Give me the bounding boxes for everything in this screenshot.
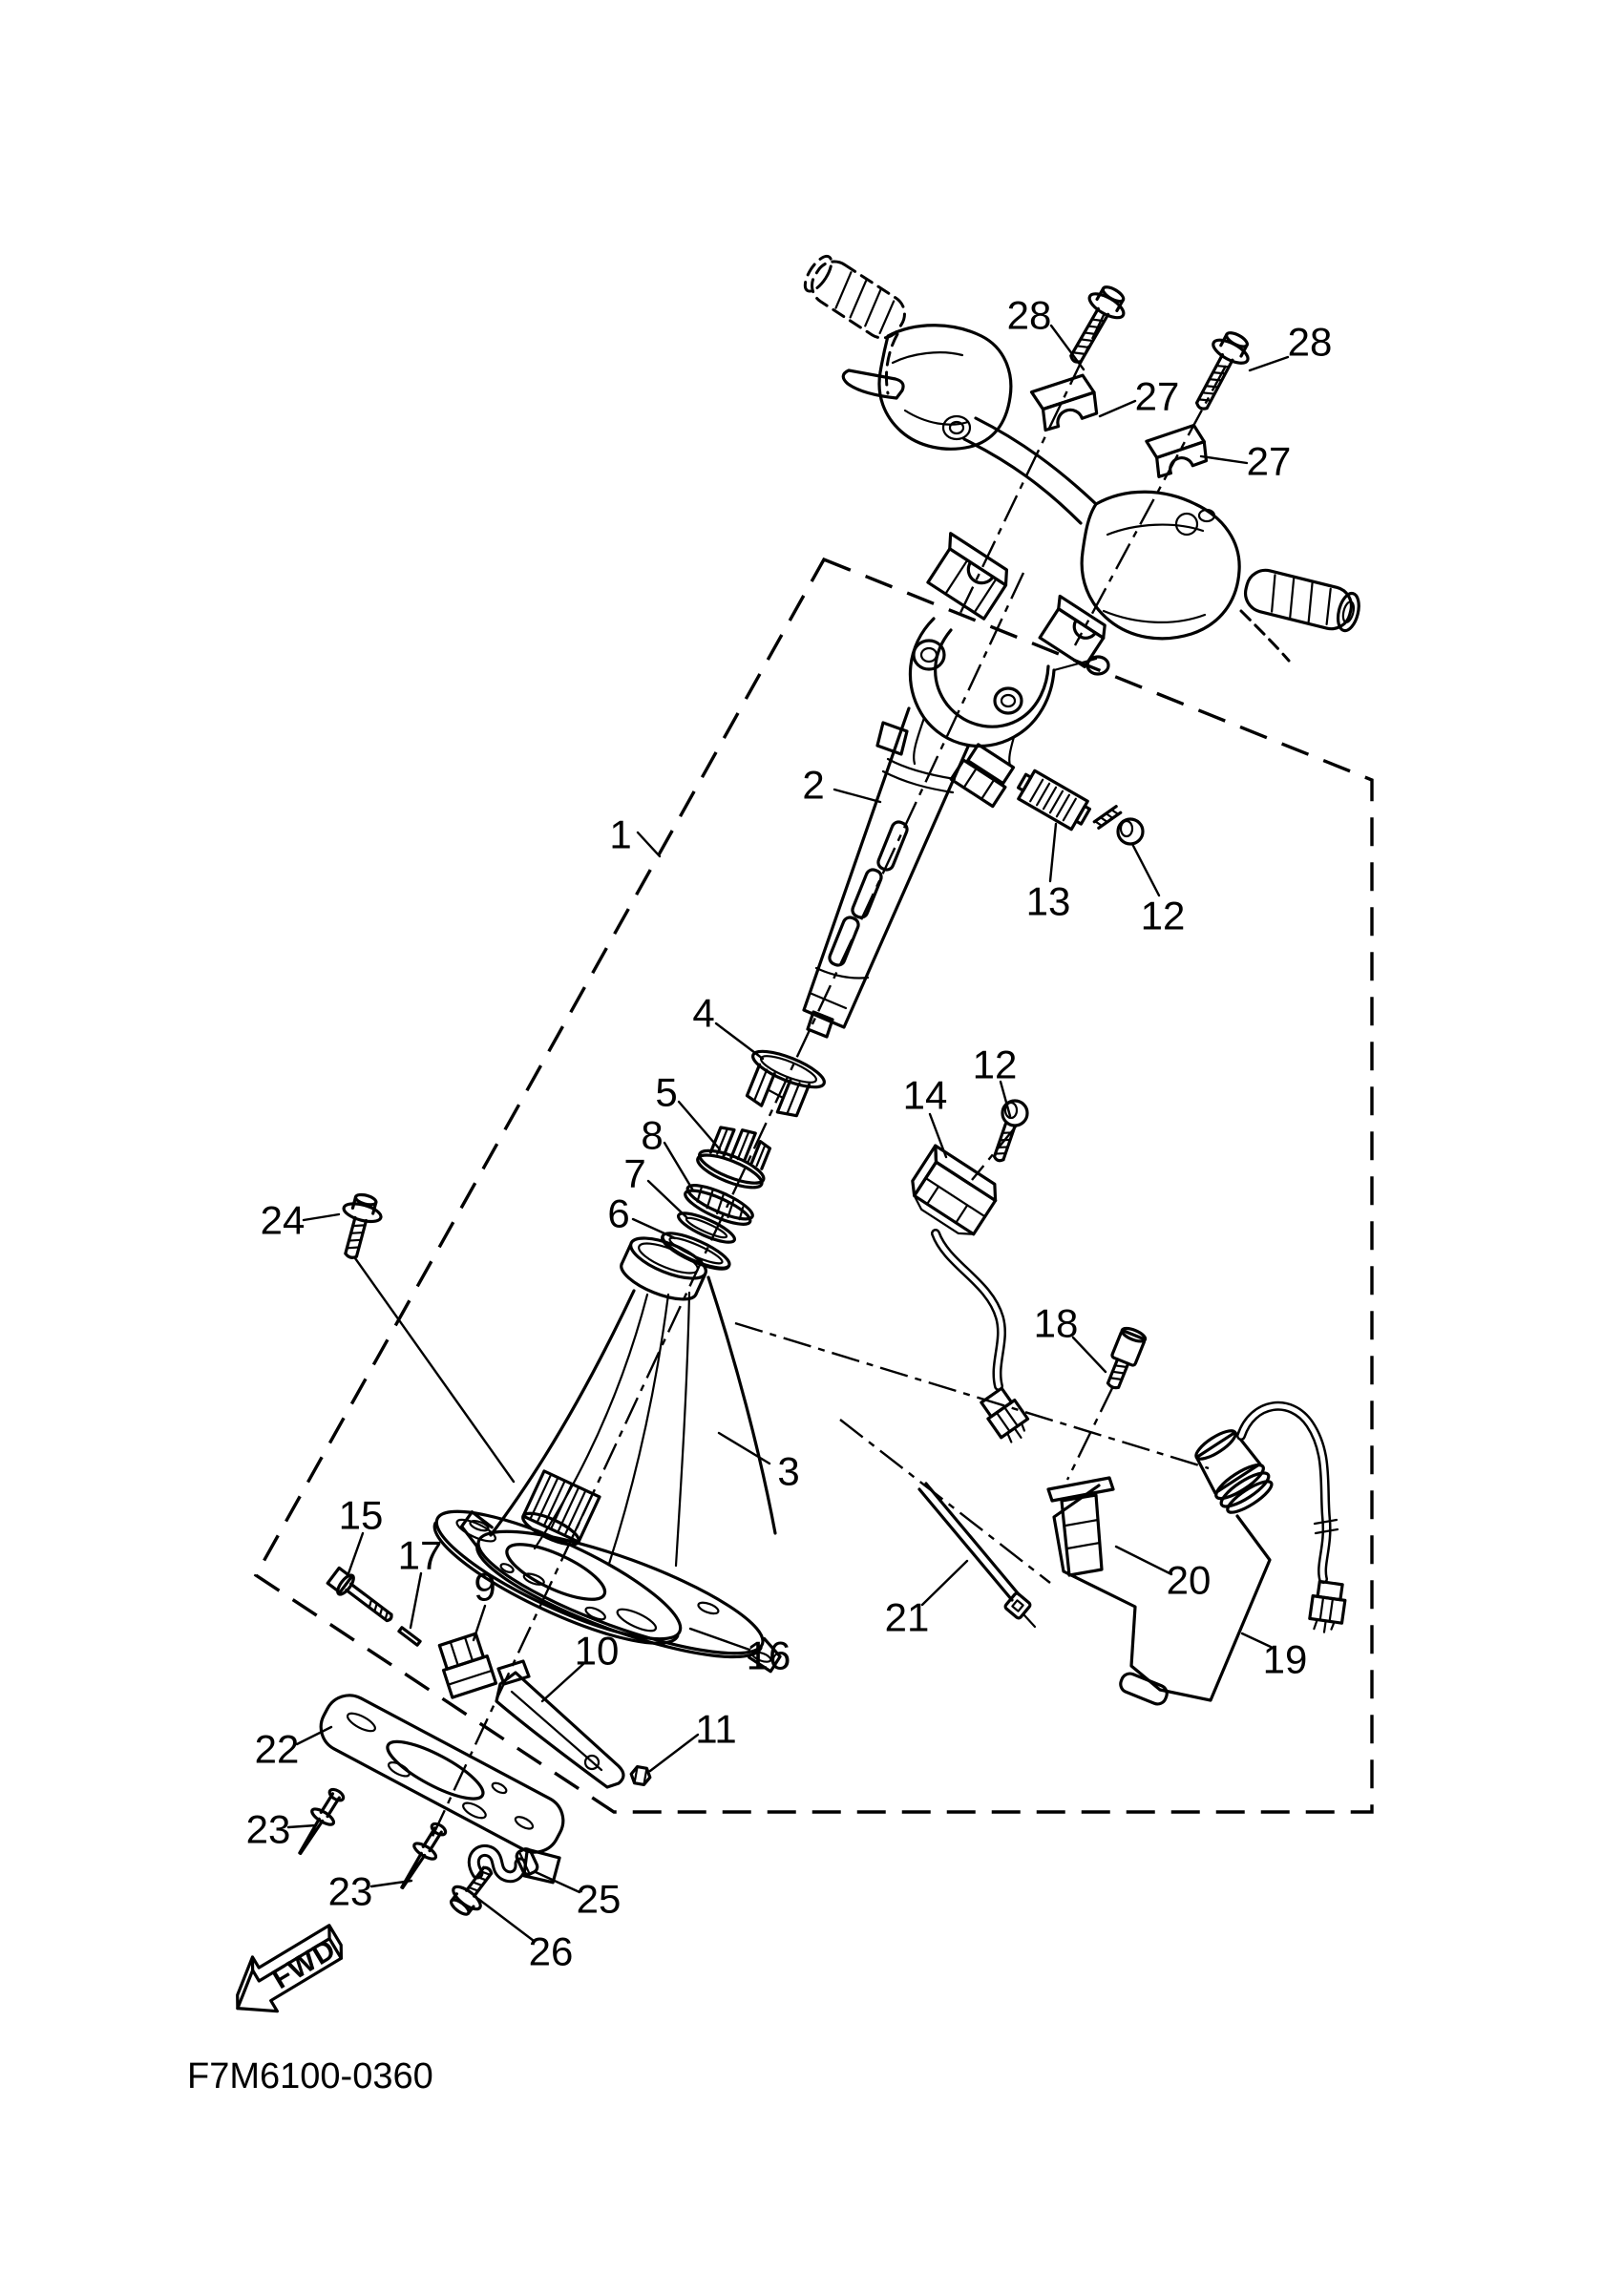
callout-12: 12 [973, 1043, 1018, 1117]
callout-number: 20 [1167, 1558, 1212, 1603]
column-collar-clamp [951, 743, 1017, 807]
clamp-27-2 [1146, 424, 1210, 477]
callout-number: 12 [973, 1043, 1018, 1087]
callout-leader-line [664, 1143, 693, 1190]
fwd-arrow-label: FWD [267, 1933, 342, 1995]
callout-leader-line [348, 1533, 363, 1576]
steering-column [804, 534, 1109, 1037]
callout-18: 18 [1034, 1301, 1106, 1373]
callout-number: 10 [575, 1629, 620, 1674]
harness-19-boot [1189, 1423, 1277, 1519]
callout-15: 15 [339, 1493, 384, 1577]
callout-1: 1 [609, 812, 660, 857]
callout-28: 28 [1250, 320, 1332, 371]
callout-leader-line [716, 1023, 763, 1059]
damper-9 [436, 1632, 496, 1697]
cable-tie-21 [919, 1484, 1035, 1627]
callout-number: 21 [885, 1595, 930, 1640]
callout-leader-line [1051, 326, 1084, 369]
callouts-layer: 1234567891011121213141516171819202122232… [246, 293, 1333, 1974]
callout-22: 22 [255, 1727, 331, 1772]
callout-number: 9 [474, 1565, 495, 1610]
callout-number: 23 [246, 1807, 291, 1852]
callout-number: 11 [695, 1707, 737, 1752]
callout-number: 12 [1141, 894, 1186, 938]
callout-2: 2 [802, 763, 880, 808]
callout-leader-line [1201, 456, 1247, 463]
callout-number: 17 [398, 1533, 443, 1578]
callout-number: 19 [1263, 1637, 1308, 1682]
bolt-28-2 [1184, 326, 1256, 417]
callout-number: 2 [802, 763, 824, 808]
callout-number: 27 [1247, 439, 1292, 484]
bolt-28-1 [1058, 281, 1132, 370]
callout-leader-line [1250, 357, 1288, 370]
left-control-pod [879, 326, 1011, 450]
harness-19-connector [1308, 1581, 1347, 1634]
left-brake-lever [843, 370, 903, 398]
callout-19: 19 [1242, 1633, 1307, 1682]
callout-12: 12 [1132, 844, 1185, 938]
callout-9: 9 [474, 1565, 496, 1641]
callout-leader-line [638, 832, 660, 856]
callout-leader-line [679, 1102, 720, 1149]
callout-27: 27 [1100, 374, 1179, 419]
handlebar-tube [976, 418, 1096, 504]
callout-leader-line [1050, 824, 1056, 881]
callout-leader-line [1116, 1547, 1171, 1574]
callout-21: 21 [885, 1561, 967, 1640]
plate-22 [302, 1687, 587, 1889]
callout-number: 7 [623, 1151, 645, 1196]
callout-number: 28 [1288, 320, 1333, 365]
bolt-15 [327, 1567, 397, 1628]
callout-number: 14 [903, 1073, 948, 1118]
exploded-diagram: FWD F7M6100-0360 12345678910111212131415… [0, 0, 1623, 2296]
callout-number: 25 [577, 1877, 622, 1922]
callout-leader-line [648, 1181, 686, 1217]
callout-leader-line [536, 1872, 580, 1892]
callout-number: 8 [641, 1113, 663, 1158]
callout-13: 13 [1026, 824, 1071, 924]
callout-number: 15 [339, 1493, 384, 1538]
screw-12-1 [1094, 807, 1143, 844]
callout-number: 5 [655, 1070, 677, 1115]
callout-leader-line [304, 1214, 339, 1220]
bolt-18 [1101, 1326, 1147, 1392]
callout-number: 26 [529, 1929, 574, 1974]
callout-17: 17 [398, 1533, 443, 1629]
drawing-number: F7M6100-0360 [187, 2056, 433, 2096]
callout-5: 5 [655, 1070, 720, 1150]
lever-10 [496, 1661, 623, 1787]
callout-leader-line [690, 1629, 749, 1650]
callout-leader-line [834, 790, 880, 802]
callout-leader-line [411, 1573, 421, 1628]
bushing-4 [737, 1044, 829, 1125]
callout-number: 18 [1034, 1301, 1079, 1346]
callout-leader-line [288, 1825, 316, 1827]
callout-number: 13 [1026, 879, 1071, 924]
callout-number: 28 [1007, 293, 1052, 338]
clamp-27-1 [1030, 373, 1100, 431]
nut-11 [630, 1766, 652, 1786]
callout-20: 20 [1116, 1547, 1211, 1603]
callout-leader-line [1100, 401, 1135, 416]
switch-14-connector [979, 1386, 1035, 1447]
callout-number: 23 [328, 1869, 373, 1914]
bolt-24 [332, 1190, 514, 1482]
callout-leader-line [650, 1735, 698, 1771]
callout-number: 4 [692, 991, 714, 1036]
callout-4: 4 [692, 991, 763, 1060]
parts-diagram-page: FWD F7M6100-0360 12345678910111212131415… [0, 0, 1623, 2296]
callout-11: 11 [650, 1707, 737, 1772]
callout-leader-line [633, 1219, 675, 1238]
callout-number: 1 [609, 812, 631, 857]
callout-25: 25 [536, 1872, 621, 1922]
callout-number: 27 [1135, 374, 1180, 419]
callout-23: 23 [328, 1869, 411, 1914]
callout-leader-line [478, 1899, 534, 1941]
castle-nut-5 [694, 1117, 778, 1194]
callout-number: 24 [261, 1198, 306, 1243]
callout-leader-line [474, 1606, 485, 1640]
callout-number: 3 [777, 1449, 799, 1494]
callout-27: 27 [1201, 439, 1291, 484]
callout-leader-line [719, 1433, 769, 1464]
switch-14 [902, 1146, 1034, 1447]
callout-14: 14 [903, 1073, 948, 1158]
handlebar-right-grip [1241, 566, 1362, 635]
callout-number: 22 [255, 1727, 300, 1772]
callout-number: 16 [747, 1633, 791, 1678]
callout-8: 8 [641, 1113, 693, 1191]
callout-number: 6 [607, 1191, 629, 1236]
pin-17 [399, 1628, 420, 1645]
assembly-boundary-dashed [256, 559, 1372, 1812]
callout-10: 10 [542, 1629, 619, 1702]
callout-24: 24 [261, 1198, 339, 1243]
callout-26: 26 [478, 1899, 573, 1974]
callout-leader-line [1132, 844, 1159, 895]
fwd-arrow-icon: FWD [219, 1915, 353, 2029]
callout-7: 7 [623, 1151, 686, 1218]
column-left-clamp-block [921, 534, 1013, 619]
bracket-20 [1048, 1478, 1113, 1575]
holder-13 [1014, 768, 1093, 832]
rivet-23-1 [289, 1784, 349, 1860]
